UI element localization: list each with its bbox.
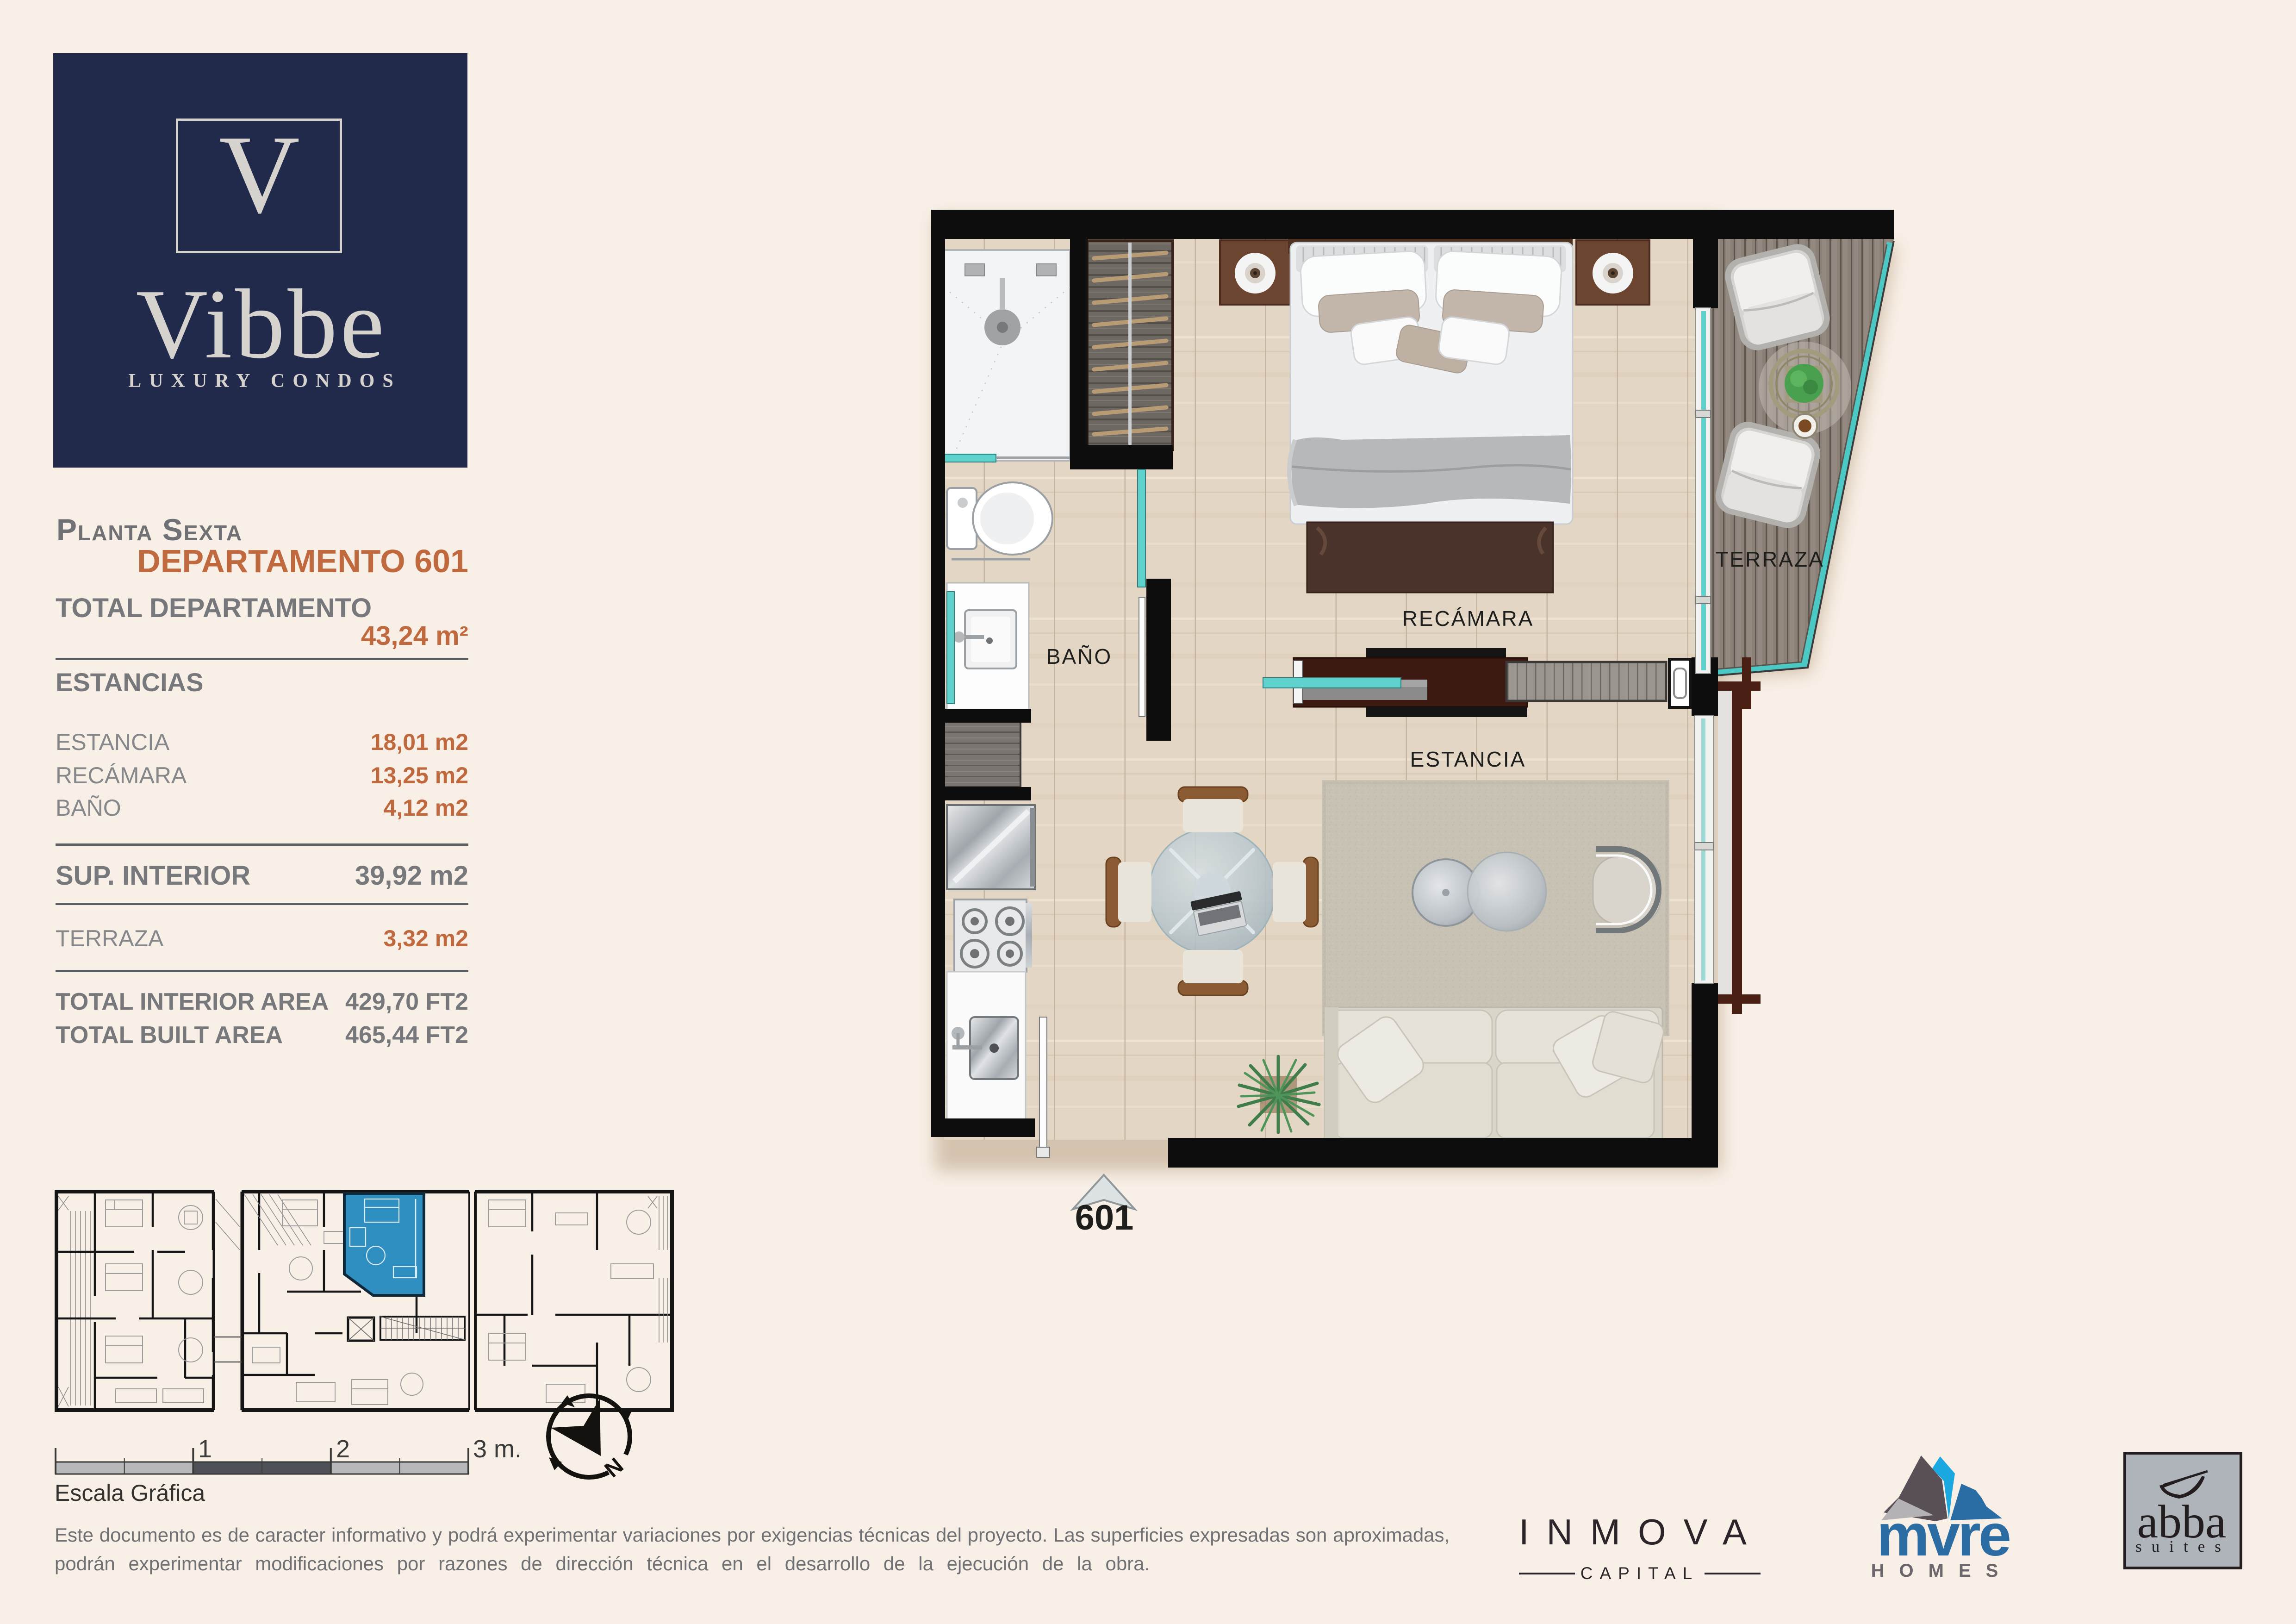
svg-text:HOMES: HOMES [1871, 1561, 2013, 1581]
svg-text:BAÑO: BAÑO [1046, 644, 1112, 668]
svg-text:2: 2 [336, 1435, 350, 1463]
svg-text:ESTANCIA: ESTANCIA [1410, 747, 1526, 771]
svg-text:1: 1 [198, 1435, 212, 1463]
svg-text:601: 601 [1075, 1198, 1134, 1237]
svg-text:RECÁMARA: RECÁMARA [1402, 606, 1534, 631]
svg-text:mvre: mvre [1877, 1502, 2010, 1568]
svg-text:3 m.: 3 m. [473, 1435, 522, 1463]
svg-text:TERRAZA: TERRAZA [1715, 547, 1824, 571]
svg-text:suites: suites [2135, 1537, 2231, 1555]
